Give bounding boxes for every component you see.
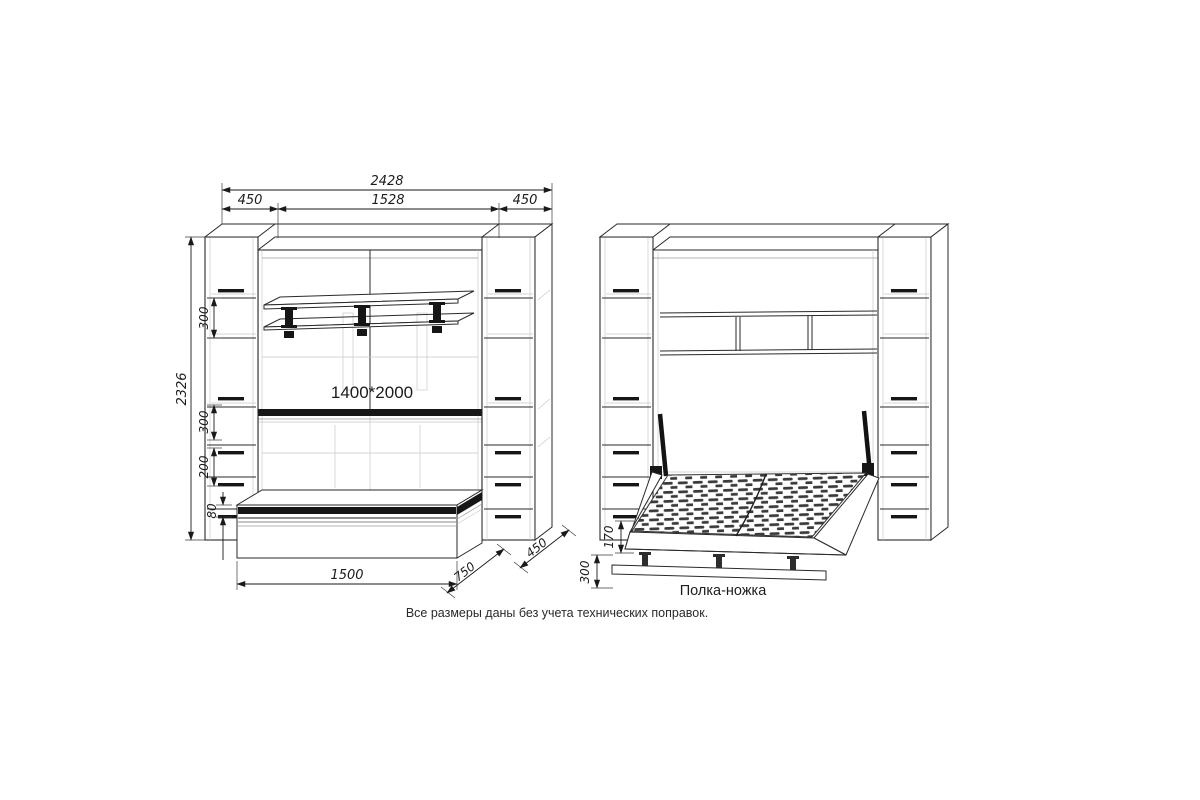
dim-drawer-block: 200 (197, 455, 211, 478)
dim-leg-height: 300 (578, 560, 592, 583)
dim-center-width: 1528 (371, 193, 404, 208)
drawing-caption: Все размеры даны без учета технических п… (406, 606, 708, 620)
dim-left-width: 450 (238, 193, 263, 208)
dim-bed-depth: 750 (451, 559, 478, 584)
dim-total-width: 2428 (370, 174, 403, 189)
open-right-cabinet (878, 224, 948, 540)
niche-shelf-unit (660, 311, 877, 355)
bed-bench (237, 490, 482, 558)
closed-right-cabinet (482, 224, 552, 540)
dim-plinth: 80 (205, 503, 219, 519)
open-view: Полка-ножка 170 300 (578, 224, 948, 599)
gas-strut-right (862, 411, 874, 476)
closed-view: 1400*2000 (175, 174, 576, 598)
wall-bed-drawing: 1400*2000 (0, 0, 1200, 800)
open-niche (653, 237, 895, 478)
bed-size-label: 1400*2000 (331, 383, 413, 402)
open-bed (612, 472, 879, 580)
dim-total-height: 2326 (175, 372, 190, 405)
dim-shelf-gap-upper: 300 (197, 306, 211, 329)
bed-front-edge-band (258, 409, 482, 416)
leg-shelf-label: Полка-ножка (680, 583, 767, 599)
blueprint-page: 1400*2000 (0, 0, 1200, 800)
dim-shelf-gap-lower: 300 (197, 410, 211, 433)
dim-right-width: 450 (513, 193, 538, 208)
dim-frame-height: 170 (602, 525, 616, 548)
dim-base-length: 1500 (330, 568, 363, 583)
bench-slat-band (238, 507, 456, 514)
